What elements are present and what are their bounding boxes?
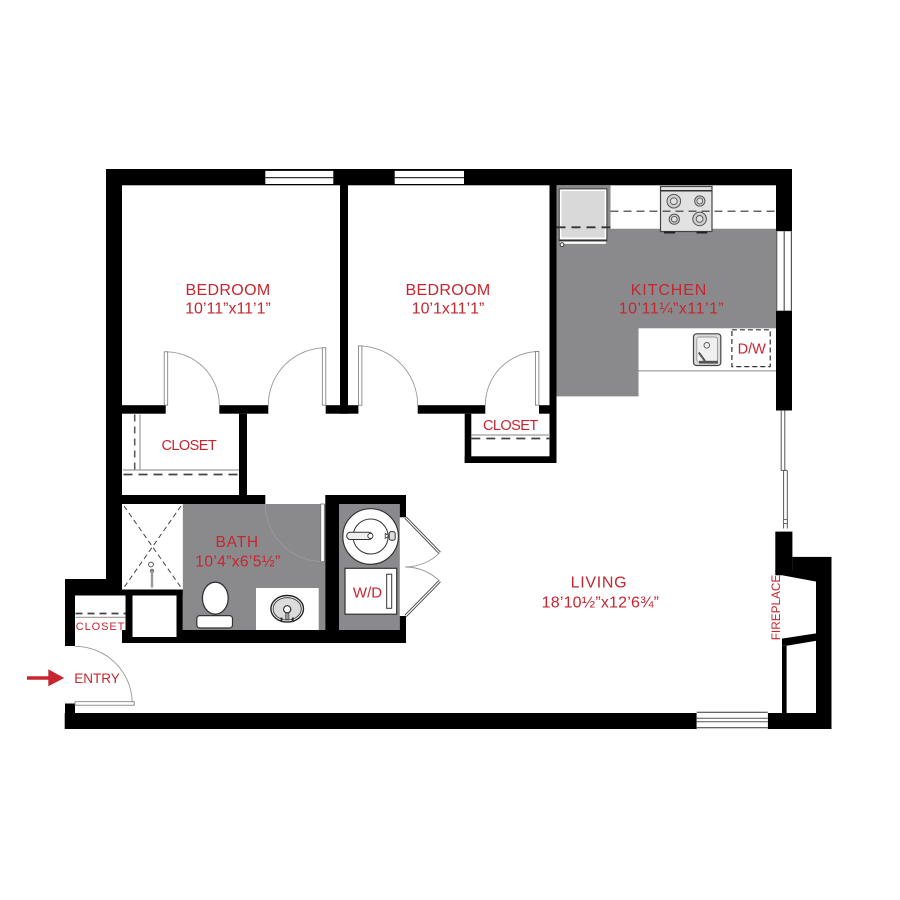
svg-text:CLOSET: CLOSET bbox=[483, 418, 538, 434]
svg-text:BATH: BATH bbox=[216, 534, 259, 551]
svg-text:W/D: W/D bbox=[353, 585, 382, 602]
svg-text:10’4”x6’5½”: 10’4”x6’5½” bbox=[195, 553, 280, 570]
svg-text:10’1x11’1”: 10’1x11’1” bbox=[412, 301, 485, 318]
svg-text:BEDROOM: BEDROOM bbox=[185, 282, 270, 299]
svg-text:CLOSET: CLOSET bbox=[161, 438, 216, 454]
svg-text:10’11”x11’1”: 10’11”x11’1” bbox=[185, 301, 271, 318]
svg-text:BEDROOM: BEDROOM bbox=[405, 282, 490, 299]
svg-text:LIVING: LIVING bbox=[571, 574, 628, 591]
svg-text:FIREPLACE: FIREPLACE bbox=[769, 575, 783, 641]
svg-text:ENTRY: ENTRY bbox=[74, 671, 120, 686]
svg-text:10’11¼”x11’1”: 10’11¼”x11’1” bbox=[619, 301, 725, 318]
svg-text:18’10½”x12’6¾”: 18’10½”x12’6¾” bbox=[542, 594, 660, 611]
svg-text:D/W: D/W bbox=[738, 341, 767, 357]
svg-text:KITCHEN: KITCHEN bbox=[631, 282, 708, 299]
svg-text:CLOSET: CLOSET bbox=[76, 621, 125, 633]
